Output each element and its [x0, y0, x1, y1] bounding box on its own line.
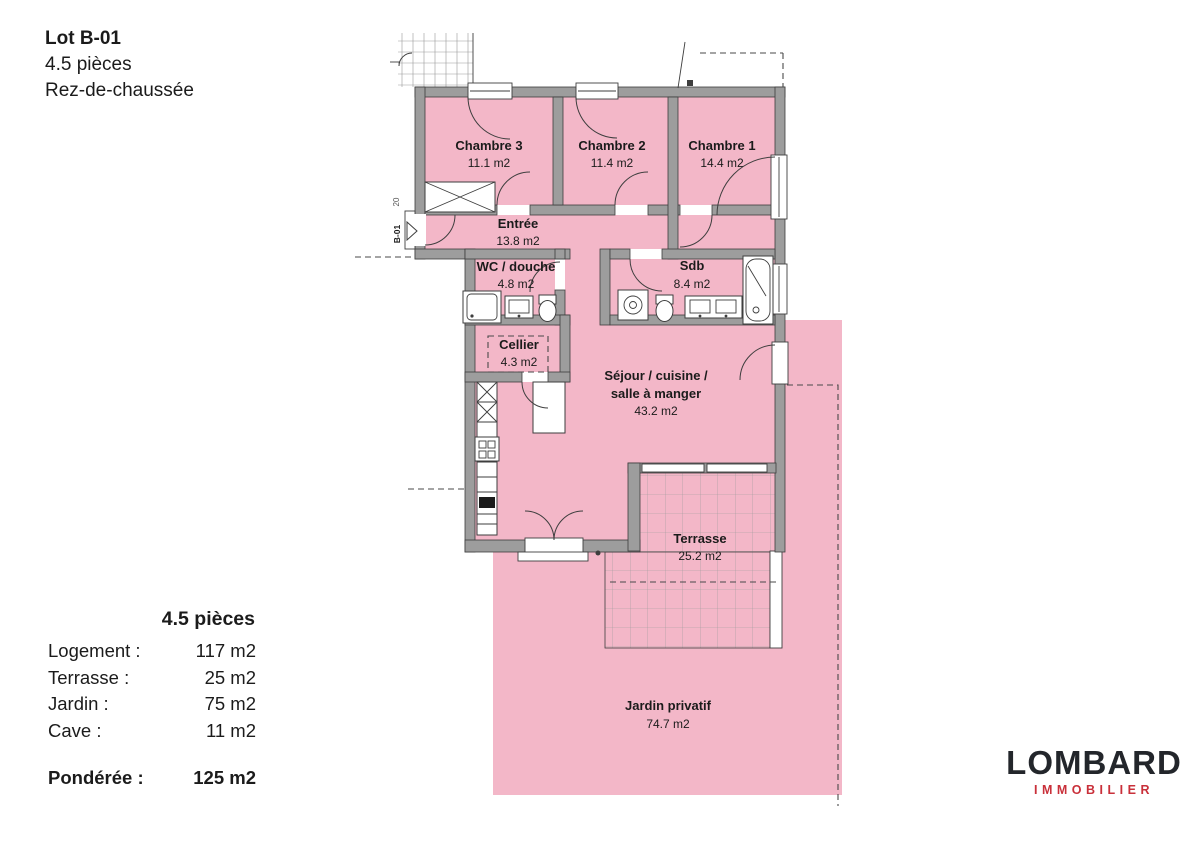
- area-chambre1: 14.4 m2: [700, 156, 744, 170]
- room-entree: [425, 215, 775, 249]
- floorplan-svg: B-01 20 Chambre 3 11.1 m2 Chambre 2 11.4…: [350, 20, 870, 830]
- terrace-glass-door-right: [707, 464, 767, 472]
- summary-value: 117 m2: [196, 638, 256, 665]
- french-door-sill: [518, 552, 588, 561]
- garden-door-frame: [772, 342, 788, 384]
- area-chambre3: 11.1 m2: [468, 156, 511, 170]
- label-cellier: Cellier: [499, 337, 539, 352]
- terrace-glass-door-left: [642, 464, 704, 472]
- label-sejour-line1: Séjour / cuisine /: [604, 368, 708, 383]
- bathtub-icon: [743, 256, 773, 324]
- window-chambre3: [468, 83, 512, 99]
- toilet-icon-sdb: [656, 295, 673, 322]
- summary-row-logement: Logement : 117 m2: [48, 638, 256, 665]
- wardrobe-icon: [425, 182, 495, 212]
- summary-label: Logement :: [48, 638, 141, 665]
- summary-value: 75 m2: [205, 691, 256, 718]
- toilet-icon-wc: [539, 295, 556, 322]
- area-cellier: 4.3 m2: [501, 355, 538, 369]
- area-wc-douche: 4.8 m2: [498, 277, 535, 291]
- kitchen-counter-icon: [475, 382, 499, 535]
- label-chambre3: Chambre 3: [455, 138, 522, 153]
- summary-label: Jardin :: [48, 691, 109, 718]
- terrace-edge: [770, 551, 782, 648]
- oven-icon: [479, 497, 495, 508]
- area-sejour: 43.2 m2: [634, 404, 678, 418]
- area-sdb: 8.4 m2: [674, 277, 711, 291]
- summary-row-jardin: Jardin : 75 m2: [48, 691, 256, 718]
- summary-value: 11 m2: [206, 718, 256, 745]
- label-sejour-line2: salle à manger: [611, 386, 701, 401]
- label-jardin: Jardin privatif: [625, 698, 712, 713]
- floorplan-page: { "header": { "lot": "Lot B-01", "pieces…: [0, 0, 1200, 848]
- double-sink-icon: [685, 296, 742, 318]
- neighbour-terrace: [390, 33, 473, 87]
- area-terrasse: 25.2 m2: [678, 549, 722, 563]
- sink-icon-wc: [505, 296, 533, 318]
- label-wc-douche: WC / douche: [477, 259, 556, 274]
- window-chambre1: [771, 155, 787, 219]
- label-sdb: Sdb: [680, 258, 705, 273]
- area-jardin: 74.7 m2: [646, 717, 690, 731]
- upper-floor-outline-dashed: [700, 53, 783, 87]
- floorplan-drawing: B-01 20 Chambre 3 11.1 m2 Chambre 2 11.4…: [350, 20, 870, 830]
- lot-header: Lot B-01 4.5 pièces Rez-de-chaussée: [45, 26, 194, 104]
- label-chambre2: Chambre 2: [578, 138, 645, 153]
- kitchen-island-icon: [533, 382, 565, 433]
- summary-title: 4.5 pièces: [48, 608, 256, 631]
- agency-logo: LOMBARD IMMOBILIER: [1003, 746, 1185, 797]
- label-terrasse: Terrasse: [673, 531, 726, 546]
- summary-row-terrasse: Terrasse : 25 m2: [48, 665, 256, 692]
- summary-row-ponderee: Pondérée : 125 m2: [48, 765, 256, 792]
- window-chambre2: [576, 83, 618, 99]
- summary-value-weighted: 125 m2: [193, 765, 256, 792]
- summary-label: Cave :: [48, 718, 101, 745]
- summary-label: Terrasse :: [48, 665, 129, 692]
- shower-icon: [463, 291, 501, 323]
- label-chambre1: Chambre 1: [688, 138, 755, 153]
- area-chambre2: 11.4 m2: [591, 156, 634, 170]
- label-entree: Entrée: [498, 216, 538, 231]
- area-summary: 4.5 pièces Logement : 117 m2 Terrasse : …: [48, 608, 256, 792]
- lot-number: Lot B-01: [45, 26, 194, 52]
- washing-machine-icon: [618, 290, 648, 320]
- area-entree: 13.8 m2: [496, 234, 540, 248]
- logo-subtitle: IMMOBILIER: [1003, 783, 1185, 797]
- summary-label-weighted: Pondérée :: [48, 765, 144, 792]
- side-marker-label: 20: [392, 197, 401, 206]
- unit-marker-label: B-01: [392, 225, 402, 244]
- logo-wordmark: LOMBARD: [1003, 746, 1185, 780]
- lot-rooms-count: 4.5 pièces: [45, 52, 194, 78]
- lot-floor: Rez-de-chaussée: [45, 78, 194, 104]
- summary-value: 25 m2: [205, 665, 256, 692]
- summary-row-cave: Cave : 11 m2: [48, 718, 256, 745]
